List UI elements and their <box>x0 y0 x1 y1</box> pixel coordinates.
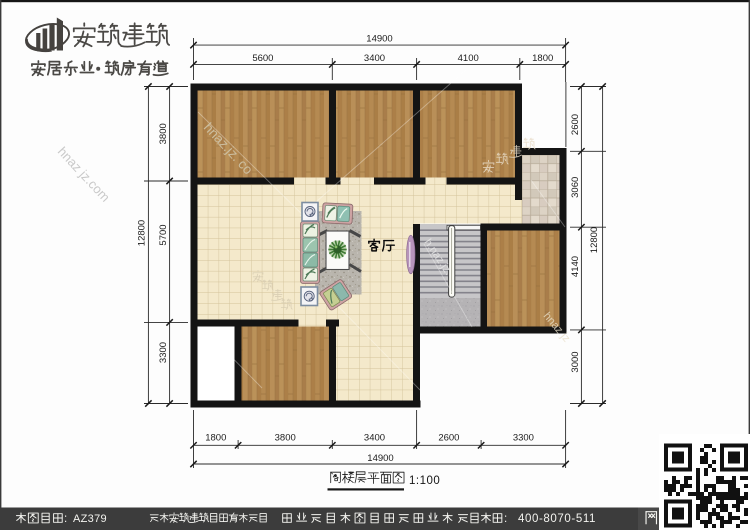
svg-text:1800: 1800 <box>205 433 226 444</box>
svg-text:3300: 3300 <box>158 342 169 363</box>
svg-text:4140: 4140 <box>570 256 581 277</box>
svg-text:12800: 12800 <box>137 220 148 246</box>
svg-text:4100: 4100 <box>458 53 479 64</box>
svg-text::: : <box>64 513 67 525</box>
svg-text:5700: 5700 <box>158 224 169 245</box>
svg-text:AZ379: AZ379 <box>73 513 107 525</box>
svg-text:3800: 3800 <box>158 123 169 144</box>
svg-text:1:100: 1:100 <box>409 475 440 487</box>
svg-text:3400: 3400 <box>364 53 385 64</box>
svg-text:3800: 3800 <box>275 433 296 444</box>
svg-text:2600: 2600 <box>570 114 581 135</box>
svg-text:3000: 3000 <box>570 351 581 372</box>
svg-text:14900: 14900 <box>366 34 392 45</box>
svg-text:5600: 5600 <box>252 53 273 64</box>
svg-text:3300: 3300 <box>513 433 534 444</box>
svg-text:1800: 1800 <box>532 53 553 64</box>
svg-text::: : <box>504 513 507 525</box>
svg-text:400-8070-511: 400-8070-511 <box>518 513 596 525</box>
svg-text:2600: 2600 <box>438 433 459 444</box>
svg-text:3400: 3400 <box>364 433 385 444</box>
svg-text:12800: 12800 <box>589 227 600 253</box>
svg-text:3060: 3060 <box>570 177 581 198</box>
svg-text:14900: 14900 <box>367 453 393 464</box>
